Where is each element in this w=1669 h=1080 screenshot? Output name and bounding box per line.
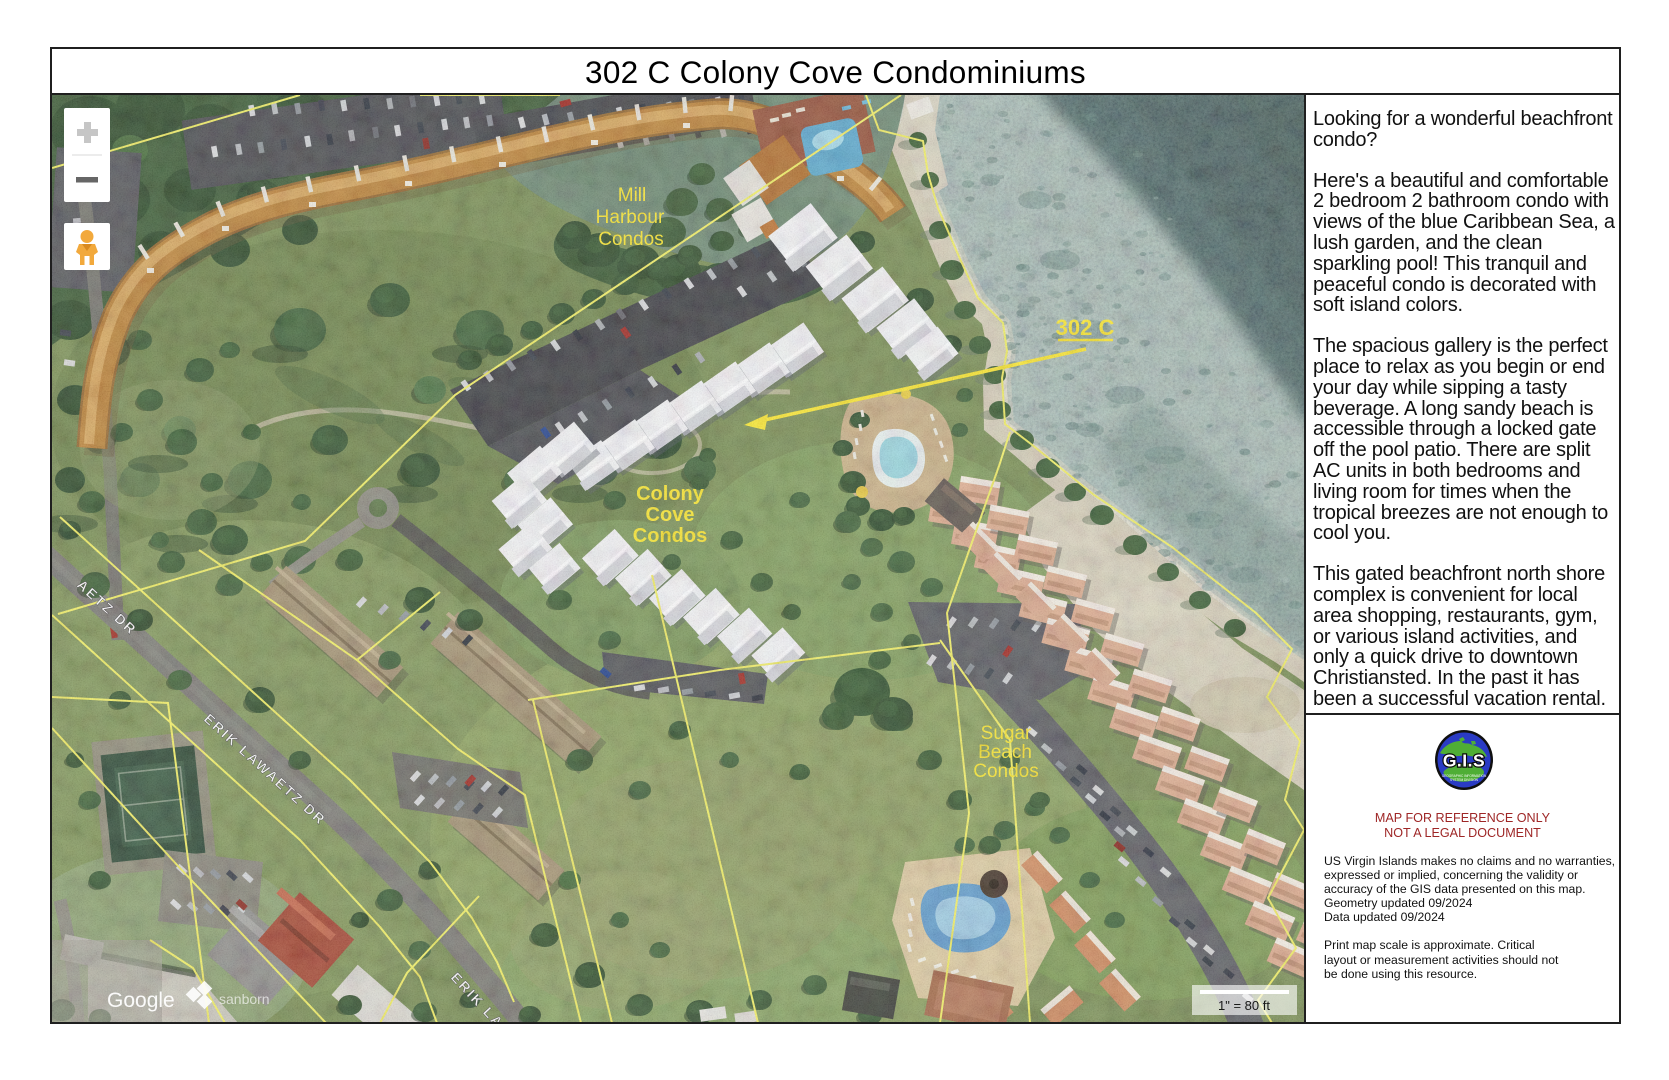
svg-text:sanborn: sanborn — [219, 991, 270, 1007]
svg-text:1" = 80 ft: 1" = 80 ft — [1218, 998, 1270, 1013]
svg-text:SYSTEM DIVISION: SYSTEM DIVISION — [1450, 778, 1479, 782]
svg-text:G.I.S: G.I.S — [1443, 751, 1485, 771]
svg-text:Google: Google — [107, 989, 175, 1012]
